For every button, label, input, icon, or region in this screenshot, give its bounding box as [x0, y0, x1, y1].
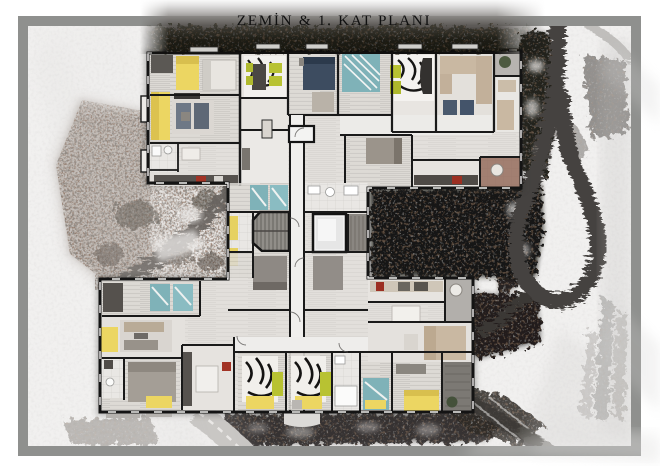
- svg-text:ZEMİN & 1. KAT PLANI: ZEMİN & 1. KAT PLANI: [237, 12, 431, 29]
